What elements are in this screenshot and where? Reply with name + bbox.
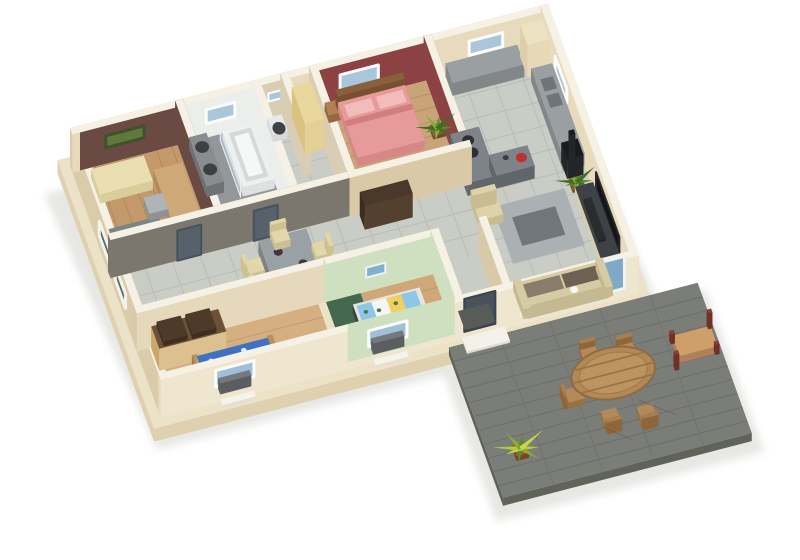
bench-leg-2 [714, 340, 720, 355]
sofa-cup [570, 286, 578, 293]
stove-pipe [568, 129, 575, 171]
bench-pole-2 [707, 309, 713, 330]
island-cup [503, 155, 509, 160]
bench-leg-1 [669, 330, 675, 345]
floorplan-scene [0, 0, 800, 560]
red-bowl [516, 153, 527, 162]
bath-sink-1 [195, 141, 209, 153]
kid2-bed-fig-1 [364, 310, 369, 314]
kid2-bed-fig-3 [394, 301, 399, 305]
floorplan-3d-render [0, 0, 800, 560]
dining-chair-5 [271, 228, 290, 250]
bath-sink-2 [203, 163, 217, 175]
kid2-bed-fig-5 [377, 308, 381, 312]
bench-pole-1 [674, 350, 680, 371]
door-office [177, 225, 201, 261]
